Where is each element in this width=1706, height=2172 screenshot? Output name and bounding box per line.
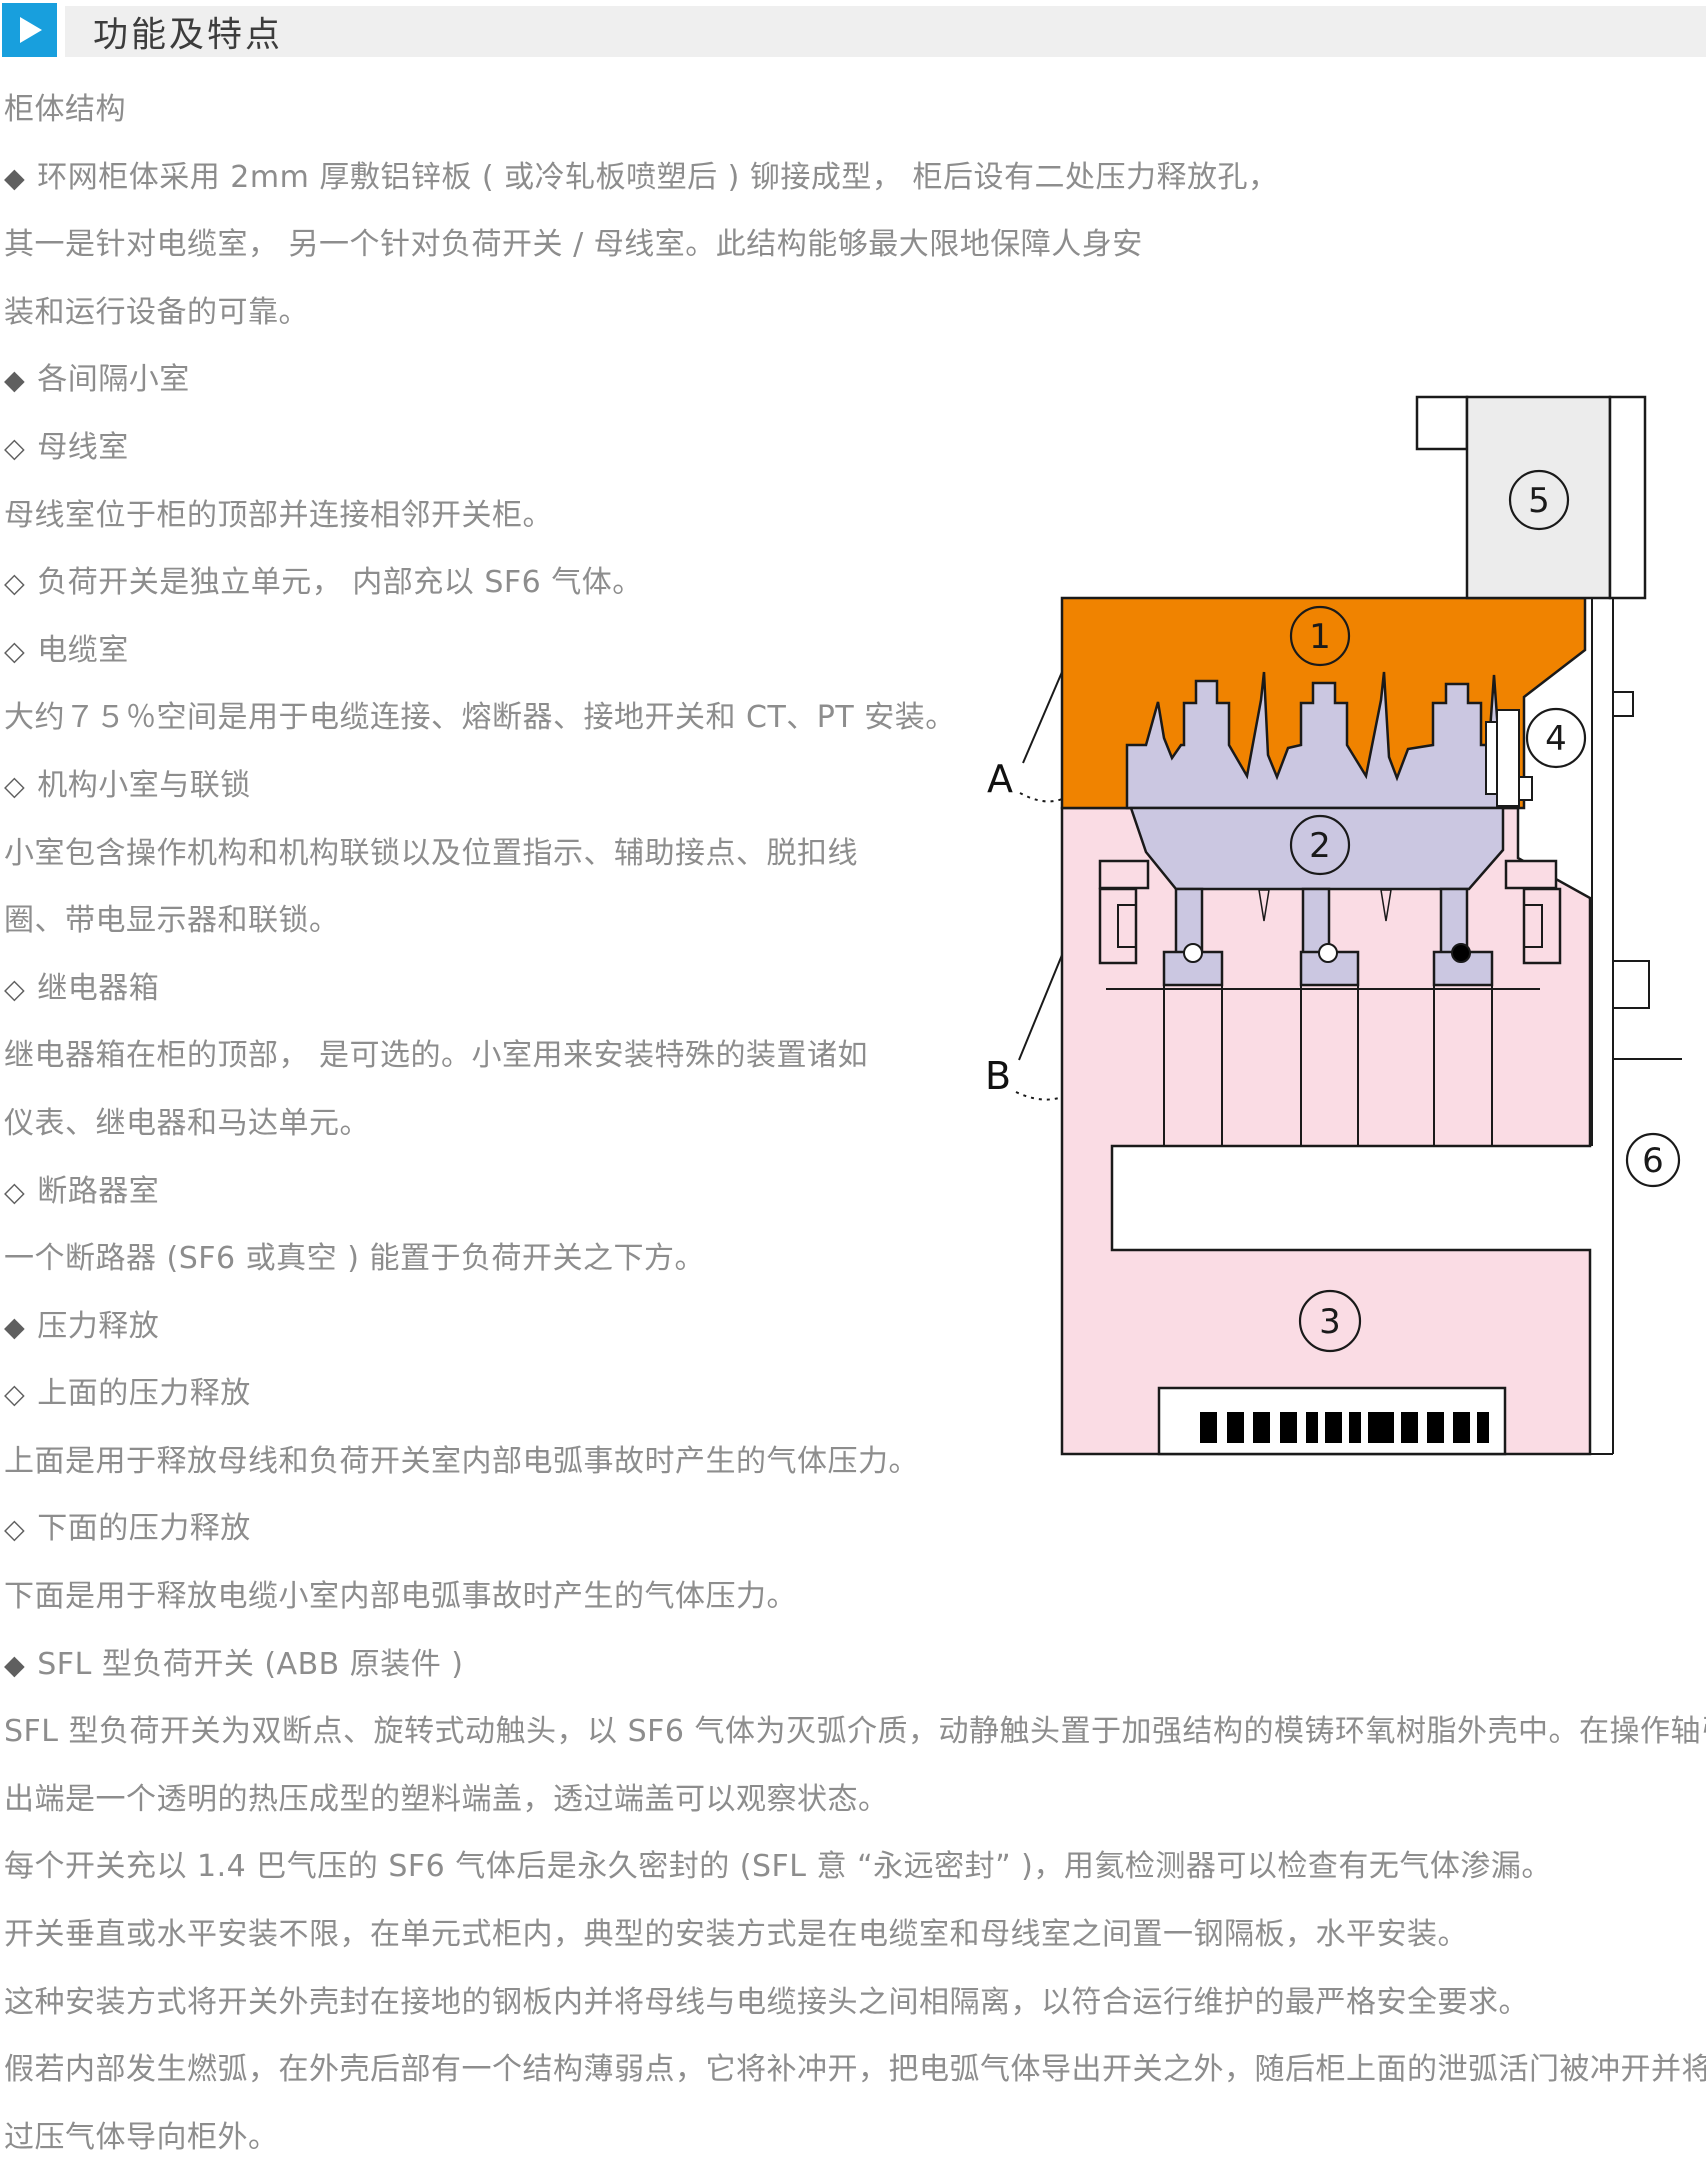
cabinet-cross-section-diagram: 1 2 3 4 5 6 A B (950, 380, 1706, 1470)
text-line: 过压气体导向柜外。 (4, 2104, 1704, 2172)
svg-text:4: 4 (1545, 719, 1567, 759)
text-line: 这种安装方式将开关外壳封在接地的钢板内并将母线与电缆接头之间相隔离，以符合运行维… (4, 1969, 1704, 2037)
bullet-icon: ◇ (4, 974, 25, 1005)
text-line: 柜体结构 (4, 76, 1704, 144)
text-line: 下面是用于释放电缆小室内部电弧事故时产生的气体压力。 (4, 1563, 1704, 1631)
relief-flap-label-a: A (987, 672, 1062, 801)
callout-4: 4 (1527, 709, 1585, 767)
section-marker-icon (2, 3, 57, 57)
svg-text:B: B (985, 1054, 1011, 1098)
terminal-contact-open (1184, 944, 1202, 962)
text-line: 其一是针对电缆室， 另一个针对负荷开关 / 母线室。此结构能够最大限地保障人身安 (4, 211, 1704, 279)
text-line: ◆环网柜体采用 2mm 厚敷铝锌板 ( 或冷轧板喷塑后 ) 铆接成型， 柜后设有… (4, 144, 1704, 212)
svg-text:6: 6 (1642, 1141, 1664, 1181)
terminal-contact-closed (1452, 944, 1470, 962)
bullet-icon: ◇ (4, 1379, 25, 1410)
callout-6: 6 (1627, 1134, 1679, 1186)
page-title: 功能及特点 (93, 6, 283, 57)
bullet-icon: ◆ (4, 365, 25, 396)
rear-wall-channel (1590, 598, 1682, 1454)
text-line: ◇下面的压力释放 (4, 1495, 1704, 1563)
switch-leg (1303, 889, 1329, 953)
text-line: 出端是一个透明的热压成型的塑料端盖，透过端盖可以观察状态。 (4, 1766, 1704, 1834)
text-line: 每个开关充以 1.4 巴气压的 SF6 气体后是永久密封的 (SFL 意 “永远… (4, 1833, 1704, 1901)
section-title-bar: 功能及特点 (65, 6, 1706, 57)
text-line: 装和运行设备的可靠。 (4, 279, 1704, 347)
play-triangle-icon (20, 17, 42, 43)
terminal-contact-open (1319, 944, 1337, 962)
svg-text:5: 5 (1528, 481, 1550, 521)
text-line: SFL 型负荷开关为双断点、旋转式动触头，以 SF6 气体为灭弧介质，动静触头置… (4, 1698, 1704, 1766)
svg-text:2: 2 (1309, 826, 1331, 866)
bullet-icon: ◆ (4, 1650, 25, 1681)
svg-text:A: A (987, 757, 1013, 801)
page-root: 功能及特点 柜体结构 ◆环网柜体采用 2mm 厚敷铝锌板 ( 或冷轧板喷塑后 )… (0, 0, 1706, 2146)
text-line: 假若内部发生燃弧，在外壳后部有一个结构薄弱点，它将补冲开，把电弧气体导出开关之外… (4, 2036, 1704, 2104)
text-line: 开关垂直或水平安装不限，在单元式柜内，典型的安装方式是在电缆室和母线室之间置一钢… (4, 1901, 1704, 1969)
bullet-icon: ◇ (4, 433, 25, 464)
bullet-icon: ◇ (4, 1514, 25, 1545)
bullet-icon: ◇ (4, 568, 25, 599)
svg-text:3: 3 (1319, 1302, 1341, 1342)
relay-box-rear-panel (1610, 397, 1645, 598)
bullet-icon: ◆ (4, 1312, 25, 1343)
text-line: ◆SFL 型负荷开关 (ABB 原装件 ) (4, 1631, 1704, 1699)
relief-flap-label-b: B (985, 955, 1062, 1100)
bullet-icon: ◆ (4, 163, 25, 194)
bullet-icon: ◇ (4, 771, 25, 802)
switch-leg (1176, 889, 1202, 953)
svg-text:1: 1 (1309, 617, 1331, 657)
bullet-icon: ◇ (4, 636, 25, 667)
bullet-icon: ◇ (4, 1177, 25, 1208)
relay-box-side-tab (1417, 397, 1467, 449)
